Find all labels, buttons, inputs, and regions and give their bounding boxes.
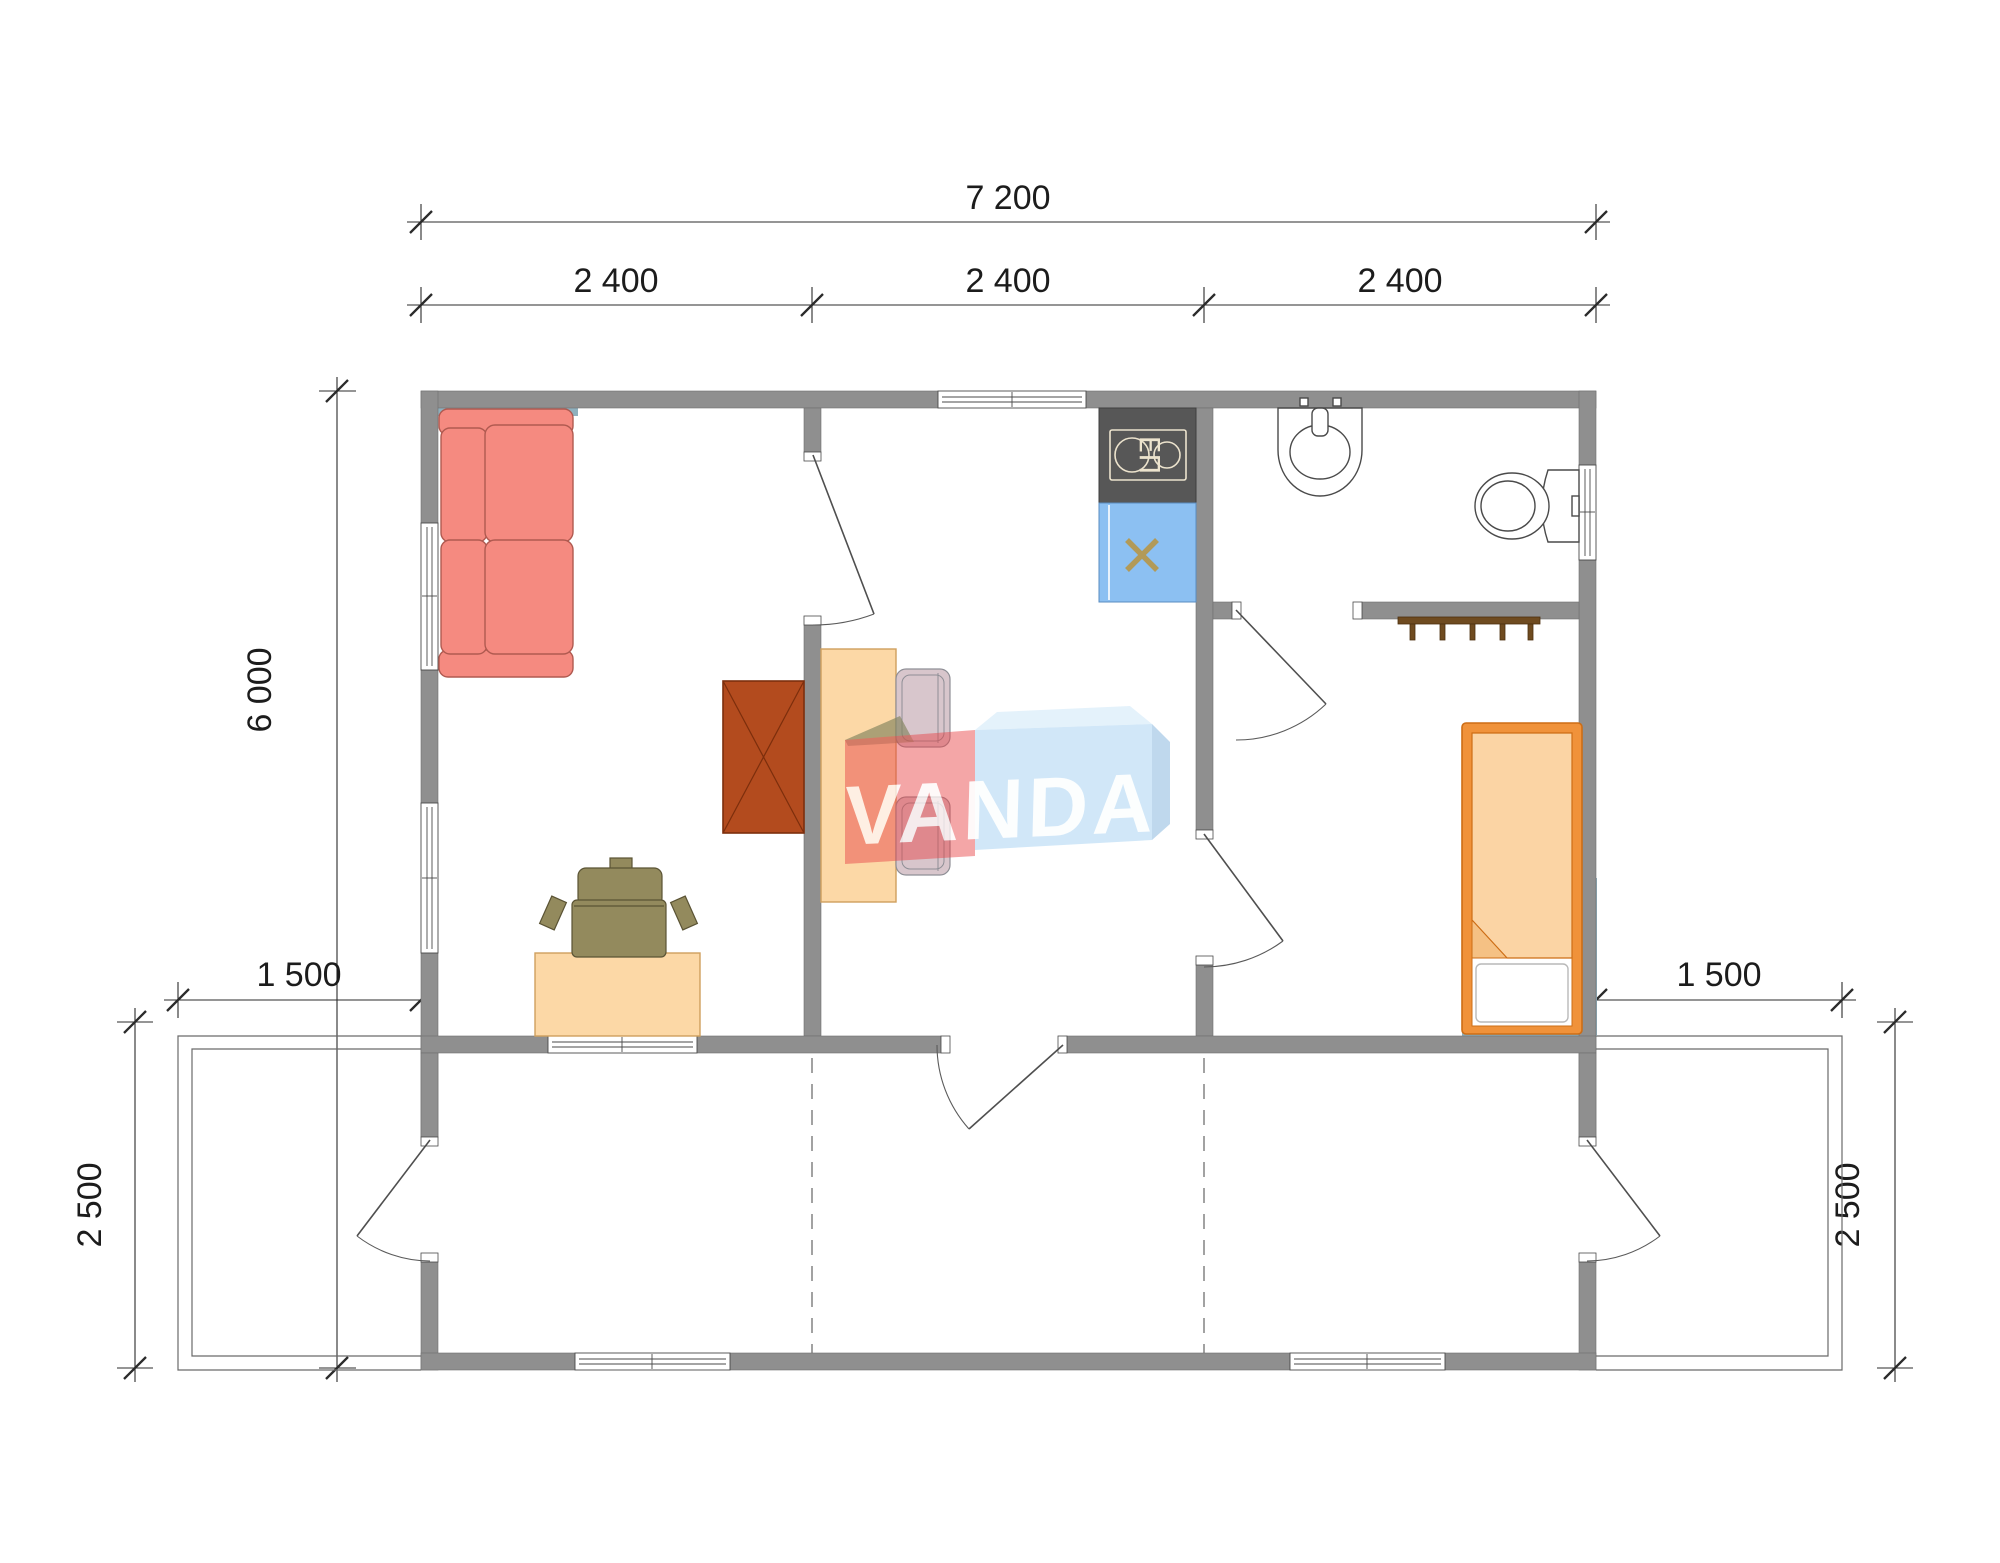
wall-segment xyxy=(1579,1053,1596,1137)
dim-label-porch-left: 1 500 xyxy=(256,956,341,994)
window-veranda-left xyxy=(575,1353,730,1370)
dim-label-module-2: 2 400 xyxy=(965,262,1050,300)
bed-pillow xyxy=(1476,964,1568,1022)
kitchen-units: ЕП xyxy=(1099,408,1196,602)
wall-segment xyxy=(1196,965,1213,1036)
dim-label-terrace-left: 2 500 xyxy=(71,1162,109,1247)
wall-segment xyxy=(1067,1036,1596,1053)
wall-segment xyxy=(730,1353,1290,1370)
office-chair-armrest xyxy=(540,896,567,930)
window-veranda-right xyxy=(1290,1353,1445,1370)
dim-label-module-3: 2 400 xyxy=(1357,262,1442,300)
wall-segment xyxy=(1445,1353,1596,1370)
desk xyxy=(535,953,700,1036)
logo-text: VANDA xyxy=(843,755,1158,863)
wardrobe xyxy=(723,681,804,833)
left-deck-outline xyxy=(178,1036,421,1370)
door-kitchen xyxy=(804,452,874,625)
door-bedroom xyxy=(1196,830,1283,967)
wall-segment xyxy=(1213,602,1232,619)
toilet xyxy=(1475,470,1579,542)
wall-segment xyxy=(421,1036,548,1053)
wall-segment xyxy=(697,1036,941,1053)
wall-segment xyxy=(1362,602,1579,619)
sofa-seat-cushion xyxy=(485,425,573,542)
basin-faucet xyxy=(1312,408,1328,436)
door-veranda-left xyxy=(357,1137,438,1262)
door-veranda-right xyxy=(1579,1137,1660,1262)
hanger-hook xyxy=(1470,624,1475,640)
single-bed xyxy=(1462,723,1582,1034)
office-chair-seat xyxy=(572,900,666,957)
sofa-back-cushion xyxy=(441,428,487,542)
wall-segment xyxy=(421,1053,438,1137)
hanger-hook xyxy=(1500,624,1505,640)
sofa-seat-cushion xyxy=(485,540,573,654)
hanger-bar xyxy=(1398,617,1540,624)
stove-unit: ЕП xyxy=(1099,408,1196,503)
dim-label-module-1: 2 400 xyxy=(573,262,658,300)
toilet-button xyxy=(1572,496,1579,516)
window-living-bottom xyxy=(548,1036,697,1053)
dim-label-porch-right: 1 500 xyxy=(1676,956,1761,994)
stove-label: ЕП xyxy=(1133,436,1166,475)
door-bathroom xyxy=(1232,602,1362,740)
dim-label-total-depth: 6 000 xyxy=(241,647,279,732)
wall-segment xyxy=(421,391,938,408)
dim-label-terrace-right: 2 500 xyxy=(1829,1162,1867,1247)
dim-label-total-width: 7 200 xyxy=(965,179,1050,217)
coat-hanger xyxy=(1398,617,1540,640)
sink-unit xyxy=(1099,503,1196,602)
office-chair-armrest xyxy=(671,896,698,930)
vanda-watermark: VANDA xyxy=(843,706,1170,864)
hanger-hook xyxy=(1440,624,1445,640)
wall-segment xyxy=(421,670,438,803)
wall-segment xyxy=(1196,408,1213,830)
sofa-back-cushion xyxy=(441,540,487,654)
hanger-hook xyxy=(1528,624,1533,640)
bed-blanket xyxy=(1472,733,1572,958)
window-living-left-upper xyxy=(421,523,438,670)
desk-workplace xyxy=(535,858,700,1036)
floor-plan-canvas: 7 200 2 400 2 400 2 400 6 000 1 500 1 50… xyxy=(0,0,2000,1563)
left-deck-outline-inner xyxy=(192,1049,421,1356)
corner-sofa xyxy=(439,409,573,677)
basin-tap-handle xyxy=(1333,398,1341,406)
wall-segment xyxy=(1579,391,1596,465)
wall-segment xyxy=(421,1353,575,1370)
toilet-seat xyxy=(1481,481,1535,531)
wash-basin xyxy=(1278,398,1362,496)
window-kitchen xyxy=(938,391,1086,408)
right-deck-outline-inner xyxy=(1596,1049,1828,1356)
floor-plan-drawing: 7 200 2 400 2 400 2 400 6 000 1 500 1 50… xyxy=(0,0,2000,1563)
wall-segment xyxy=(421,391,438,523)
wall-segment xyxy=(804,408,821,452)
hanger-hook xyxy=(1410,624,1415,640)
window-living-left-lower xyxy=(421,803,438,953)
right-deck-outline xyxy=(1596,1036,1842,1370)
door-entrance xyxy=(937,1036,1067,1129)
basin-tap-handle xyxy=(1300,398,1308,406)
wall-segment xyxy=(804,625,821,1036)
window-bathroom xyxy=(1579,465,1596,560)
